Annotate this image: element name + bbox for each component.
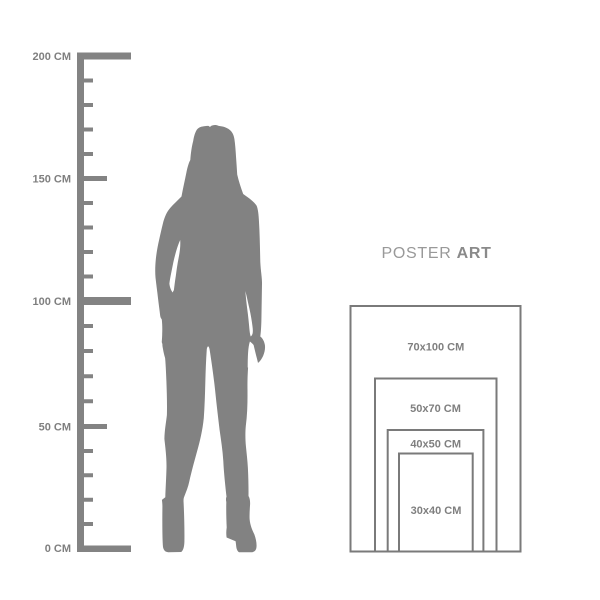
- svg-text:40x50 CM: 40x50 CM: [410, 439, 461, 451]
- svg-text:150 CM: 150 CM: [32, 174, 71, 186]
- svg-text:50x70 CM: 50x70 CM: [410, 403, 461, 415]
- svg-text:70x100 CM: 70x100 CM: [407, 342, 464, 354]
- svg-text:100 CM: 100 CM: [32, 296, 71, 308]
- svg-text:POSTER ART: POSTER ART: [382, 245, 492, 262]
- svg-text:50 CM: 50 CM: [39, 422, 71, 434]
- svg-text:200 CM: 200 CM: [32, 51, 71, 63]
- svg-text:0 CM: 0 CM: [45, 543, 71, 555]
- svg-text:30x40 CM: 30x40 CM: [411, 505, 462, 517]
